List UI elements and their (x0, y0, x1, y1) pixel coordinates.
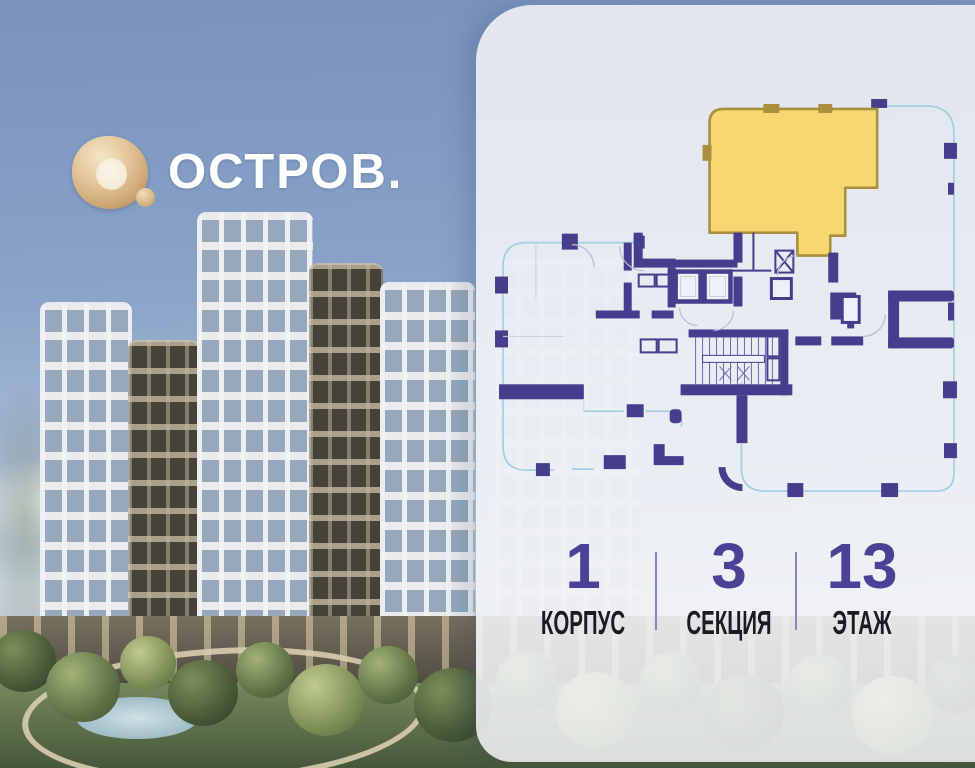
info-panel: 1 КОРПУС 3 СЕКЦИЯ 13 ЭТАЖ (476, 5, 975, 762)
stat-building: 1 КОРПУС (515, 534, 651, 642)
tree (288, 664, 364, 736)
logo-dot (136, 188, 155, 207)
tree (46, 652, 120, 722)
tree (358, 646, 418, 704)
stat-building-label: КОРПУС (541, 604, 625, 642)
stat-section-value: 3 (660, 534, 798, 598)
page-root: ОСТРОВ. (0, 0, 975, 768)
stat-section-label: СЕКЦИЯ (686, 604, 771, 642)
stat-section: 3 СЕКЦИЯ (660, 534, 798, 642)
logo-o-hole (96, 158, 127, 190)
logo-o-icon (72, 136, 148, 209)
staircase (696, 336, 780, 384)
stat-floor-value: 13 (814, 534, 909, 598)
stat-divider (655, 552, 657, 630)
tower (40, 302, 132, 662)
floorplan-svg (476, 85, 975, 514)
brand-logo: ОСТРОВ. (72, 136, 403, 209)
tree (168, 660, 238, 726)
selected-apartment[interactable] (703, 104, 878, 256)
stat-floor: 13 ЭТАЖ (814, 534, 909, 642)
stat-divider (795, 552, 797, 630)
tree (120, 636, 176, 690)
tree (236, 642, 294, 698)
tower (197, 212, 313, 682)
brand-name: ОСТРОВ. (168, 148, 403, 197)
stat-building-value: 1 (515, 534, 651, 598)
stat-floor-label: ЭТАЖ (832, 604, 891, 642)
